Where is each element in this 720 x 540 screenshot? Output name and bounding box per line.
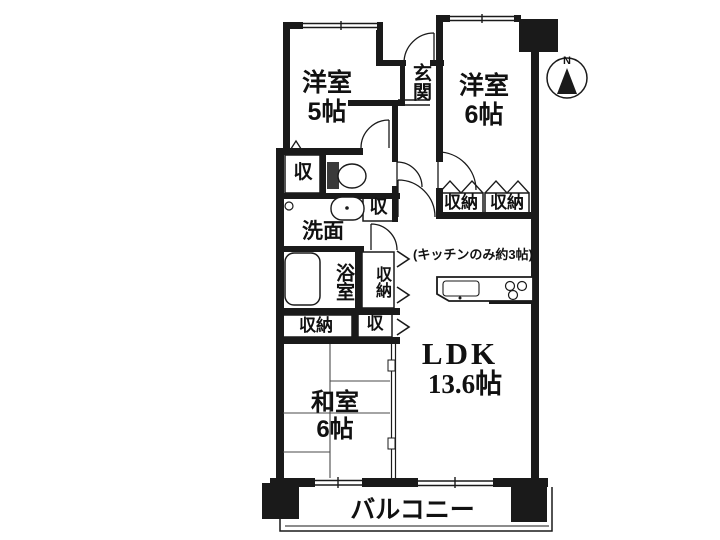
toilet-fixture	[327, 162, 366, 189]
bedroom6-closet-left-label: 収納	[439, 194, 483, 212]
bedroom6-name-label: 洋室	[444, 73, 524, 99]
ldk-name-label: LDK	[410, 338, 510, 371]
closet-upper-left-label: 収	[285, 163, 321, 183]
balcony-label: バルコニー	[340, 497, 485, 523]
bedroom6-closet-right-label: 収納	[485, 194, 529, 212]
washroom-label: 洗面	[288, 221, 358, 243]
closet-mid-tall-label: 収納	[369, 260, 389, 304]
compass-north-label: N	[560, 56, 574, 68]
closet-hall-label: 収	[363, 198, 394, 217]
kitchen-note-label: (キッチンのみ約3帖)	[406, 248, 540, 262]
bedroom6-size-label: 6帖	[444, 102, 524, 128]
closet-lower-small-label: 収	[358, 315, 392, 333]
sliding-door-fusuma	[388, 344, 396, 478]
bathtub-fixture	[285, 253, 320, 305]
washbasin-fixture	[285, 197, 364, 220]
ldk-size-label: 13.6帖	[405, 370, 525, 398]
entrance-label: 玄関	[406, 58, 430, 106]
bathroom-label: 浴室	[329, 257, 353, 307]
floor-plan-canvas: 洋室 5帖 玄関 洋室 6帖 収 収 洗面 浴室 収納 収納 収 収納 収納 (…	[0, 0, 720, 540]
closet-lower-label: 収納	[280, 317, 352, 335]
japanese-room-size-label: 6帖	[295, 417, 375, 442]
kitchen-note-chevrons	[397, 251, 409, 335]
bedroom5-size-label: 5帖	[287, 99, 367, 125]
bedroom5-name-label: 洋室	[287, 70, 367, 96]
kitchen-counter-fixture	[437, 277, 533, 301]
japanese-room-name-label: 和室	[295, 390, 375, 415]
